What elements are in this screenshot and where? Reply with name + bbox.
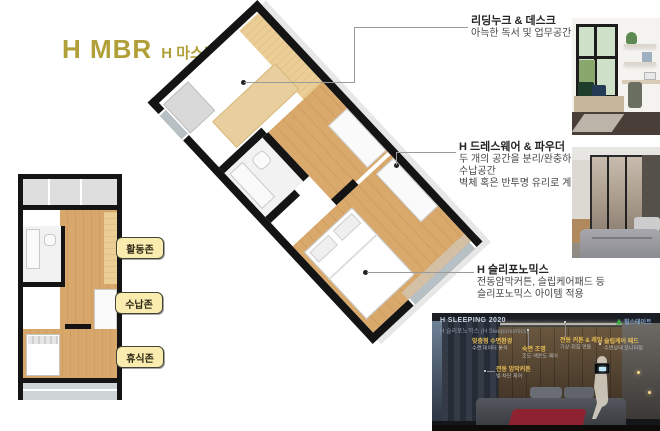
bed-pillow bbox=[530, 387, 562, 398]
window-mullion bbox=[576, 56, 618, 59]
zone-tag-label: 수납존 bbox=[125, 296, 153, 311]
wardrobe bbox=[94, 289, 117, 331]
callout-line bbox=[528, 331, 529, 346]
neighbor-room bbox=[23, 179, 117, 205]
dark-panel-subtitle: H 슬리포노믹스 (H Sleeponomics) bbox=[440, 326, 528, 335]
brand-logo: 힐스테이트 bbox=[616, 317, 652, 326]
floor bbox=[432, 425, 660, 431]
callout-heading: 슬립케어 패드 bbox=[604, 339, 650, 346]
annotation-heading: H 슬리포노믹스 bbox=[477, 264, 627, 277]
annotation-line: 전동암막커튼, 슬립케어패드 등 bbox=[477, 277, 627, 289]
slide-canvas: H MBR H 마스터룸 활동존 bbox=[0, 0, 660, 431]
laptop bbox=[644, 72, 656, 80]
callout-motor-curtain: 전동 커튼 & 레일 기상·취침 연동 bbox=[560, 338, 602, 352]
chair bbox=[628, 82, 642, 108]
callout-heading: 맞춤형 수면환경 bbox=[472, 339, 514, 346]
callout-sub: 수면 데이터 분석 bbox=[472, 346, 508, 352]
zone-tag-activity: 활동존 bbox=[116, 237, 164, 259]
callout-line bbox=[565, 323, 566, 337]
dark-panel-title: H SLEEPING 2020 bbox=[440, 317, 506, 324]
glass-frame bbox=[625, 155, 627, 235]
bed-blanket bbox=[580, 229, 660, 258]
plant bbox=[626, 32, 637, 44]
callout-sub: 조도·색온도 제어 bbox=[522, 354, 558, 360]
wall bbox=[61, 226, 65, 282]
photo-sleeponomics-night: H SLEEPING 2020 H 슬리포노믹스 (H Sleeponomics… bbox=[432, 313, 660, 431]
zone-tag-storage: 수납존 bbox=[115, 292, 163, 314]
callout-sub: 빛 차단 제어 bbox=[496, 374, 526, 380]
zone-tag-rest: 휴식존 bbox=[116, 346, 164, 368]
shelf bbox=[624, 44, 656, 47]
leader-line bbox=[244, 82, 354, 83]
wall bbox=[23, 282, 65, 287]
shelf bbox=[624, 62, 656, 65]
brand-logo-icon bbox=[616, 319, 622, 325]
callout-line bbox=[487, 371, 495, 372]
callout-heading: 전동 커튼 & 레일 bbox=[560, 338, 602, 345]
decor-vase bbox=[642, 52, 652, 62]
balcony bbox=[23, 383, 117, 400]
glass-frame bbox=[607, 155, 609, 235]
toilet bbox=[44, 234, 56, 246]
zone-tag-label: 활동존 bbox=[126, 241, 154, 256]
callout-sleep-light: 숙면 조명 조도·색온도 제어 bbox=[522, 347, 564, 361]
leader-line bbox=[354, 27, 355, 83]
callout-sub: 기상·취침 연동 bbox=[560, 345, 596, 351]
callout-heading: 숙면 조명 bbox=[522, 347, 564, 354]
zone-tag-label: 휴식존 bbox=[126, 350, 154, 365]
leader-line bbox=[396, 152, 456, 153]
callout-heading: 전동 암막커튼 bbox=[496, 367, 531, 374]
wall-left bbox=[572, 160, 590, 222]
callout-sleep-env: 맞춤형 수면환경 수면 데이터 분석 bbox=[472, 339, 514, 353]
blanket-fold bbox=[592, 237, 652, 239]
brand-logo-text: 힐스테이트 bbox=[624, 317, 652, 326]
downlight bbox=[648, 391, 651, 394]
leader-line bbox=[396, 152, 397, 165]
room-divider bbox=[80, 179, 82, 205]
annotation-line: 슬리포노믹스 아이템 적용 bbox=[477, 289, 627, 301]
leader-line bbox=[367, 272, 474, 273]
wall-pad-screen bbox=[599, 367, 606, 371]
room-divider bbox=[48, 179, 50, 205]
wall-pad bbox=[594, 363, 610, 374]
small-floor-plan bbox=[18, 174, 122, 400]
callout-dot bbox=[484, 370, 486, 372]
side-wall bbox=[622, 323, 660, 419]
bathtub bbox=[26, 229, 40, 269]
downlight bbox=[637, 371, 640, 374]
callout-sub: 수면상태 모니터링 bbox=[604, 346, 643, 352]
photo-dressroom bbox=[572, 147, 660, 258]
callout-dot bbox=[564, 321, 566, 323]
callout-blackout-curtain: 전동 암막커튼 빛 차단 제어 bbox=[496, 367, 531, 381]
callout-sleepcare-pad: 슬립케어 패드 수면상태 모니터링 bbox=[604, 339, 650, 353]
balcony-frame bbox=[23, 389, 117, 391]
page-title-main: H MBR bbox=[62, 34, 152, 65]
photo-reading-nook bbox=[572, 18, 660, 135]
wall-right bbox=[642, 155, 660, 225]
callout-dot bbox=[527, 329, 529, 331]
leader-line bbox=[354, 27, 468, 28]
annotation-sleeponomics: H 슬리포노믹스 전동암막커튼, 슬립케어패드 등 슬리포노믹스 아이템 적용 bbox=[477, 264, 627, 301]
bed-pillows bbox=[28, 336, 58, 344]
